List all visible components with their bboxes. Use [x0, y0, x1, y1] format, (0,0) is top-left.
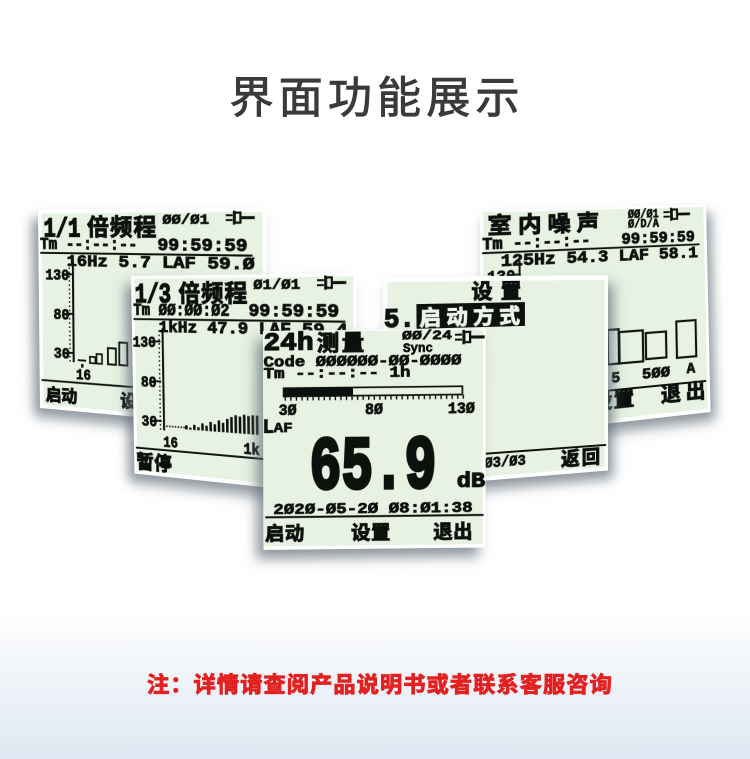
svg-text:30: 30 — [54, 346, 70, 364]
svg-text:130: 130 — [133, 335, 156, 353]
svg-text:99:59:59: 99:59:59 — [248, 301, 339, 323]
svg-text:8Ø: 8Ø — [365, 401, 383, 419]
svg-text:80: 80 — [53, 307, 69, 325]
svg-text:A: A — [687, 361, 696, 379]
svg-text:Ø1/Ø1: Ø1/Ø1 — [253, 277, 300, 294]
svg-text:dB: dB — [457, 470, 485, 494]
svg-text:3Ø: 3Ø — [279, 402, 297, 420]
svg-text:65.9: 65.9 — [310, 425, 437, 512]
svg-text:13Ø: 13Ø — [448, 400, 475, 418]
svg-text:AF: AF — [274, 421, 293, 437]
svg-text:24h: 24h — [263, 329, 313, 359]
svg-text:130: 130 — [45, 268, 69, 285]
svg-text:5ØØ: 5ØØ — [642, 364, 671, 384]
svg-text:30: 30 — [141, 413, 157, 431]
svg-text:Ø3/Ø3: Ø3/Ø3 — [484, 453, 526, 473]
svg-text:L: L — [263, 416, 274, 438]
svg-text:ØØ/Ø1: ØØ/Ø1 — [162, 212, 209, 228]
svg-text:5: 5 — [611, 370, 620, 388]
svg-text:80: 80 — [141, 374, 157, 392]
svg-text:Tm --:--:-- 1h: Tm --:--:-- 1h — [264, 366, 411, 384]
